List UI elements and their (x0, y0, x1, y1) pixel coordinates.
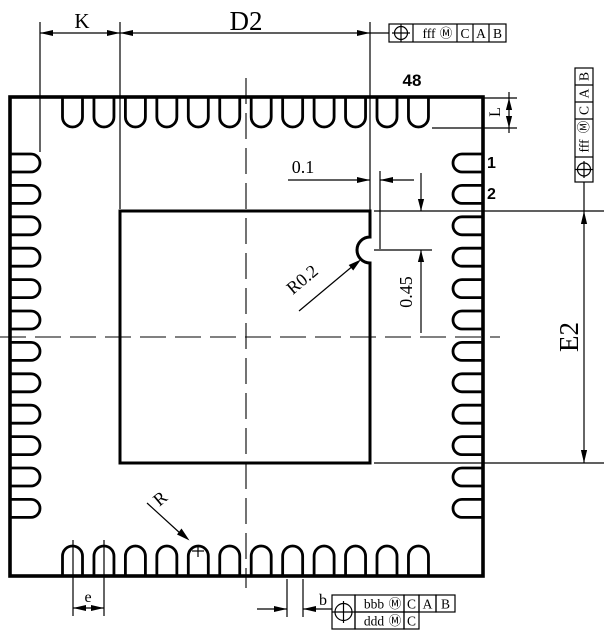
fcf-bottom-tolerance-1: bbb (364, 597, 385, 612)
pin (10, 405, 40, 423)
dim-label-E2: E2 (554, 322, 584, 352)
pin (188, 97, 208, 127)
pin (453, 185, 483, 203)
pin (251, 546, 271, 576)
pin (125, 546, 145, 576)
pin (220, 97, 240, 127)
fcf-bottom-datum-a: A (423, 597, 433, 612)
pin (10, 217, 40, 235)
pin (10, 499, 40, 517)
pin (346, 546, 366, 576)
material-condition-icon: Ⓜ (440, 27, 453, 41)
pin (453, 280, 483, 298)
pin (453, 217, 483, 235)
fcf-top-datum-c: C (460, 26, 469, 41)
dim-label-D2: D2 (230, 6, 263, 36)
pin (10, 342, 40, 360)
position-symbol-icon (392, 24, 410, 42)
fcf-bottom-tolerance-2: ddd (364, 614, 385, 629)
pin (314, 546, 334, 576)
dim-label-R: R (149, 487, 171, 510)
fcf-right-datum-b: B (577, 72, 592, 81)
fcf-bottom-datum-c-1: C (407, 597, 416, 612)
material-condition-icon: Ⓜ (389, 597, 402, 611)
pin (408, 97, 428, 127)
dim-label-R0-2: R0.2 (282, 261, 321, 299)
pin (314, 97, 334, 127)
fcf-right-tolerance: fff (577, 139, 592, 153)
pin (125, 97, 145, 127)
pin (10, 185, 40, 203)
pin (157, 546, 177, 576)
pin (346, 97, 366, 127)
pin (63, 97, 83, 127)
dim-label-e: e (84, 589, 91, 606)
fcf-top-datum-a: A (476, 26, 486, 41)
pin-label-1: 1 (487, 155, 496, 172)
fcf-bottom: bbb Ⓜ C A B ddd Ⓜ C (332, 595, 455, 629)
drawing-canvas: K D2 L 0.1 0.45 R0.2 E2 R e b 48 1 2 fff… (0, 0, 607, 639)
fcf-right-datum-c: C (577, 106, 592, 115)
pin (251, 97, 271, 127)
pin (10, 437, 40, 455)
pin (283, 546, 303, 576)
dim-label-0-1: 0.1 (292, 157, 315, 177)
fcf-top-tolerance: fff (423, 26, 437, 41)
dim-label-b: b (319, 592, 327, 609)
pin (408, 546, 428, 576)
pin (453, 374, 483, 392)
fcf-top: fff Ⓜ C A B (389, 24, 506, 42)
position-symbol-icon (333, 601, 355, 623)
pin (10, 154, 40, 172)
pin-label-2: 2 (487, 186, 496, 203)
pin (453, 405, 483, 423)
material-condition-icon: Ⓜ (577, 120, 591, 133)
pin (453, 437, 483, 455)
pin (10, 468, 40, 486)
pin (453, 468, 483, 486)
pin (377, 97, 397, 127)
fcf-top-datum-b: B (493, 26, 502, 41)
dim-label-K: K (74, 9, 89, 33)
pin (283, 97, 303, 127)
pin (10, 311, 40, 329)
pin (10, 280, 40, 298)
pin (453, 342, 483, 360)
pin (220, 546, 240, 576)
pin (453, 499, 483, 517)
pin (10, 248, 40, 266)
pin (377, 546, 397, 576)
fcf-right-datum-a: A (577, 88, 592, 98)
pin (453, 311, 483, 329)
pin (94, 97, 114, 127)
pin (10, 374, 40, 392)
pin (453, 154, 483, 172)
dim-label-L: L (487, 107, 504, 117)
fcf-bottom-datum-c-2: C (407, 614, 416, 629)
material-condition-icon: Ⓜ (389, 614, 402, 628)
pin-label-48: 48 (403, 71, 422, 90)
position-symbol-icon (576, 161, 593, 178)
fcf-right: B A C fff Ⓜ (575, 68, 593, 182)
pin (157, 97, 177, 127)
qfn-package-drawing: K D2 L 0.1 0.45 R0.2 E2 R e b 48 1 2 fff… (0, 0, 607, 639)
dim-label-0-45: 0.45 (396, 276, 416, 308)
pin (453, 248, 483, 266)
fcf-bottom-datum-b: B (441, 597, 450, 612)
